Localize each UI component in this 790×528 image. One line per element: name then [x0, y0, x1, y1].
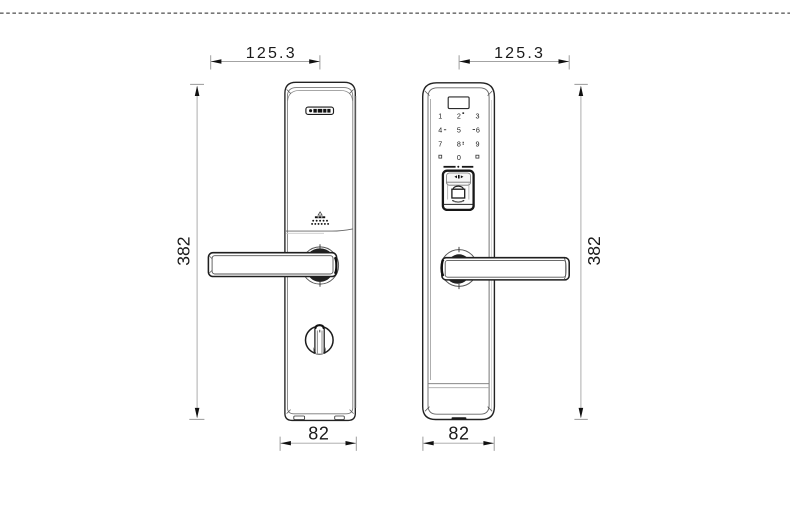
svg-text:125.3: 125.3 — [246, 45, 297, 62]
svg-text:1: 1 — [438, 112, 442, 121]
svg-text:0: 0 — [457, 153, 461, 162]
svg-text:8: 8 — [457, 139, 461, 148]
svg-text:2: 2 — [457, 112, 461, 121]
svg-text:6: 6 — [476, 126, 480, 135]
svg-text:7: 7 — [438, 139, 442, 148]
svg-text:9: 9 — [476, 139, 480, 148]
svg-text:382: 382 — [584, 236, 604, 265]
svg-text:4: 4 — [438, 126, 442, 135]
svg-text:5: 5 — [457, 126, 461, 135]
svg-text:82: 82 — [308, 423, 329, 443]
svg-text:125.3: 125.3 — [494, 45, 545, 62]
svg-text:3: 3 — [476, 112, 480, 121]
svg-text:382: 382 — [173, 236, 193, 265]
svg-text:82: 82 — [448, 423, 469, 443]
